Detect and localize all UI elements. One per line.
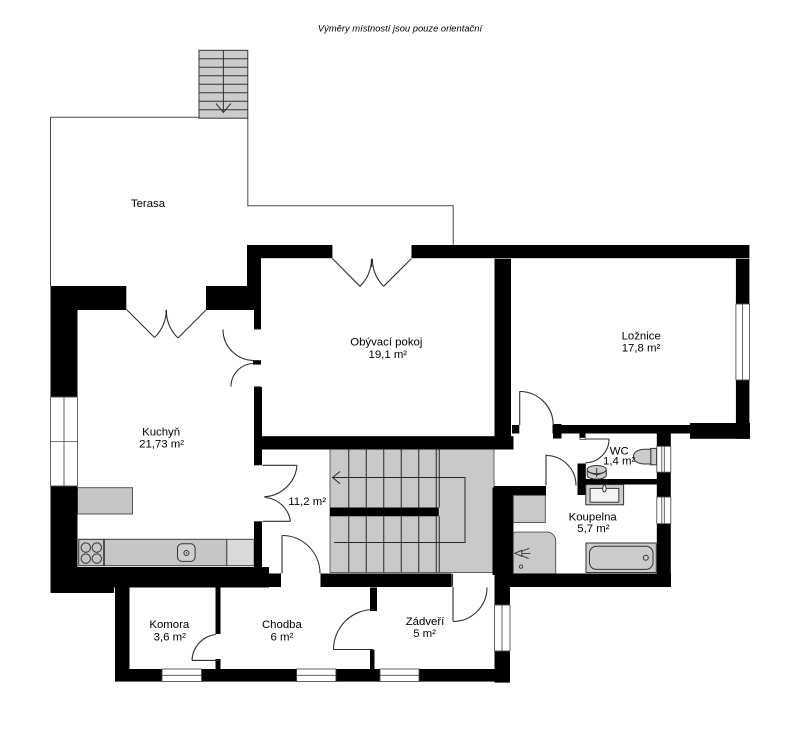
svg-text:Obývací pokoj: Obývací pokoj <box>350 337 422 349</box>
svg-text:Ložnice: Ložnice <box>622 331 661 343</box>
svg-text:Koupelna: Koupelna <box>569 511 618 523</box>
svg-text:19,1 m²: 19,1 m² <box>368 349 407 361</box>
svg-text:Komora: Komora <box>149 619 190 631</box>
svg-text:5,7 m²: 5,7 m² <box>577 523 609 535</box>
svg-text:Výměry místností jsou pouze or: Výměry místností jsou pouze orientační <box>318 23 484 34</box>
svg-text:17,8 m²: 17,8 m² <box>622 342 661 354</box>
svg-text:6 m²: 6 m² <box>271 631 294 643</box>
svg-text:3,6 m²: 3,6 m² <box>154 631 186 643</box>
svg-text:21,73 m²: 21,73 m² <box>139 438 184 450</box>
svg-text:1,4 m²: 1,4 m² <box>603 456 635 468</box>
svg-text:Terasa: Terasa <box>131 198 166 210</box>
svg-text:Chodba: Chodba <box>262 619 303 631</box>
svg-text:Zádveří: Zádveří <box>406 616 445 628</box>
svg-text:5 m²: 5 m² <box>413 628 436 640</box>
svg-text:11,2 m²: 11,2 m² <box>288 496 326 508</box>
svg-text:Kuchyň: Kuchyň <box>142 427 180 439</box>
